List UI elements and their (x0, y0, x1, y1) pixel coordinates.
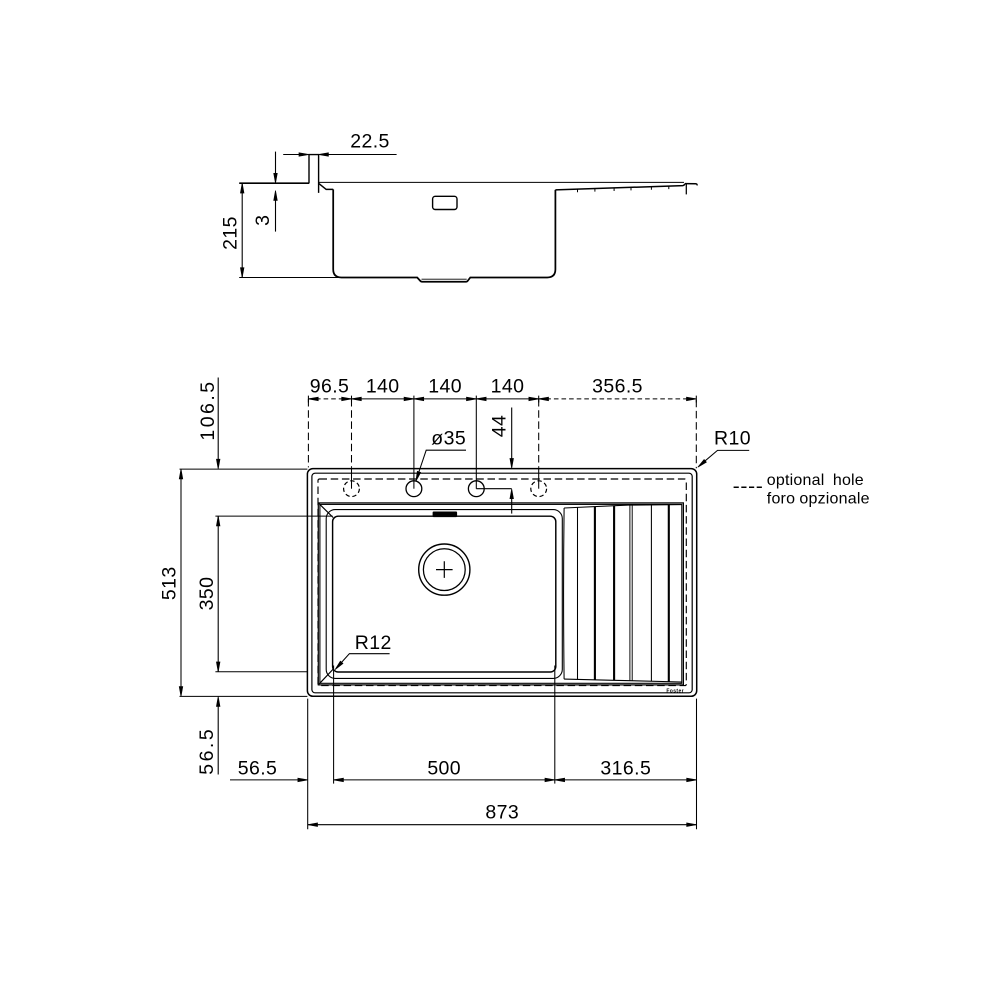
svg-text:22.5: 22.5 (350, 131, 390, 153)
svg-text:140: 140 (366, 375, 400, 397)
svg-text:44: 44 (489, 415, 511, 438)
svg-text:Foster: Foster (666, 688, 684, 694)
svg-text:140: 140 (428, 375, 462, 397)
svg-text:R10: R10 (714, 428, 751, 450)
svg-text:350: 350 (196, 577, 218, 611)
svg-text:106.5: 106.5 (197, 379, 219, 440)
svg-text:140: 140 (491, 375, 525, 397)
svg-text:56.5: 56.5 (238, 757, 278, 779)
svg-text:513: 513 (159, 566, 181, 600)
svg-text:96.5: 96.5 (310, 375, 350, 397)
svg-text:356.5: 356.5 (592, 375, 643, 397)
svg-text:56.5: 56.5 (196, 727, 218, 775)
svg-text:873: 873 (485, 802, 519, 824)
svg-text:316.5: 316.5 (600, 757, 651, 779)
svg-text:500: 500 (427, 757, 461, 779)
svg-text:3: 3 (252, 215, 274, 226)
svg-text:optional hole: optional hole (767, 472, 864, 489)
svg-text:R12: R12 (355, 632, 392, 654)
svg-text:215: 215 (219, 216, 241, 250)
svg-text:foro opzionale: foro opzionale (767, 491, 870, 508)
svg-text:ø35: ø35 (431, 427, 466, 449)
